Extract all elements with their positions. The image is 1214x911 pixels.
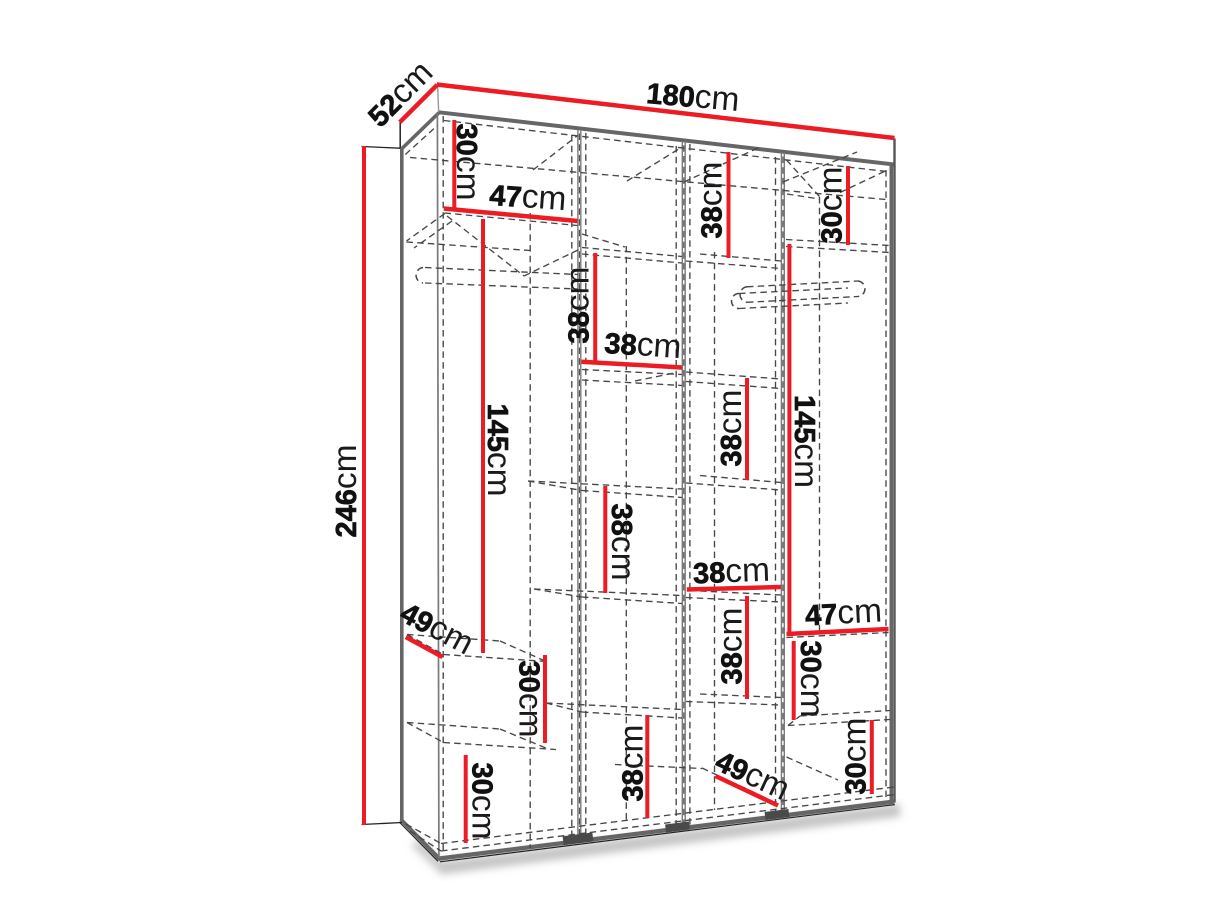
svg-text:30cm: 30cm [793,641,830,718]
svg-text:145cm: 145cm [787,395,824,488]
svg-text:38cm: 38cm [604,504,641,581]
svg-text:30cm: 30cm [449,124,486,201]
svg-text:38cm: 38cm [692,552,770,592]
svg-text:38cm: 38cm [693,162,730,239]
svg-text:38cm: 38cm [603,324,682,366]
svg-text:30cm: 30cm [813,167,850,244]
svg-text:246cm: 246cm [327,444,364,537]
svg-text:38cm: 38cm [713,608,750,685]
svg-text:38cm: 38cm [614,725,651,802]
svg-text:30cm: 30cm [465,763,502,840]
svg-text:38cm: 38cm [712,390,749,467]
svg-text:38cm: 38cm [560,267,597,344]
svg-text:30cm: 30cm [512,661,549,738]
svg-text:145cm: 145cm [480,403,517,496]
svg-text:47cm: 47cm [488,176,567,218]
svg-text:30cm: 30cm [837,718,874,795]
